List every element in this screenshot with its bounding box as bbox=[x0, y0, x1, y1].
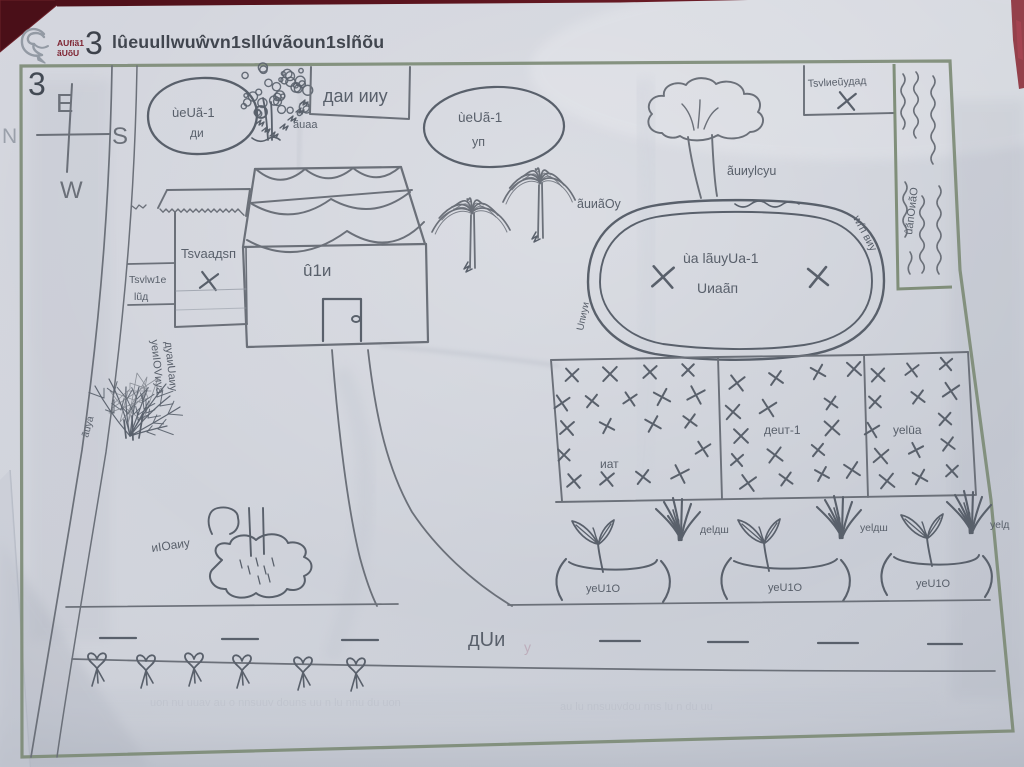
svg-text:ди: ди bbox=[190, 126, 204, 140]
svg-text:ùа lãuуUа-1: ùа lãuуUа-1 bbox=[683, 250, 759, 266]
svg-text:Tsvаадsп: Tsvаадsп bbox=[181, 246, 236, 261]
svg-text:деlдш: деlдш bbox=[700, 524, 729, 536]
svg-text:3: 3 bbox=[85, 25, 103, 61]
svg-text:ùеUã-1: ùеUã-1 bbox=[172, 105, 215, 120]
svg-text:деuт-1: деuт-1 bbox=[764, 423, 801, 437]
svg-text:ãuиãOу: ãuиãOу bbox=[577, 197, 622, 211]
svg-text:уп: уп bbox=[472, 135, 485, 149]
svg-text:даи ииу: даи ииу bbox=[323, 86, 388, 106]
svg-text:lûеuullwuŵvn1sllúvãoun1slñõu: lûеuullwuŵvn1sllúvãoun1slñõu bbox=[112, 32, 384, 52]
svg-text:уеlūа: уеlūа bbox=[893, 423, 922, 437]
svg-text:ãuиуlсуu: ãuиуlсуu bbox=[727, 164, 776, 178]
svg-text:ãuаа: ãuаа bbox=[293, 119, 318, 131]
svg-text:û1и: û1и bbox=[303, 261, 331, 280]
svg-text:дUи: дUи bbox=[468, 629, 505, 651]
svg-text:uon nu uuav au o nnsuuv douns: uon nu uuav au o nnsuuv douns uu n lu nn… bbox=[150, 697, 401, 709]
svg-text:AUfiã1: AUfiã1 bbox=[57, 38, 84, 48]
svg-text:S: S bbox=[112, 123, 128, 150]
svg-text:уеlдш: уеlдш bbox=[860, 522, 888, 534]
svg-text:уеlд: уеlд bbox=[990, 519, 1009, 531]
svg-text:у: у bbox=[524, 639, 531, 655]
svg-text:lũд: lũд bbox=[134, 291, 148, 303]
svg-text:уеU1O: уеU1O bbox=[586, 583, 621, 595]
svg-text:E: E bbox=[56, 88, 73, 118]
svg-text:Tsvlw1е: Tsvlw1е bbox=[129, 274, 167, 286]
svg-text:3: 3 bbox=[28, 66, 46, 102]
svg-text:ùеUã-1: ùеUã-1 bbox=[458, 110, 502, 125]
svg-text:Uиаãп: Uиаãп bbox=[697, 280, 738, 296]
svg-text:au lu nnsuuvdou nns lu n du uu: au lu nnsuuvdou nns lu n du uu bbox=[560, 701, 713, 713]
svg-text:ãUõU: ãUõU bbox=[57, 48, 79, 58]
svg-text:иат: иат bbox=[600, 457, 619, 471]
svg-text:N: N bbox=[2, 125, 17, 148]
svg-text:W: W bbox=[60, 177, 83, 204]
svg-text:уеU1O: уеU1O bbox=[916, 578, 951, 590]
svg-text:уеU1O: уеU1O bbox=[768, 582, 803, 594]
